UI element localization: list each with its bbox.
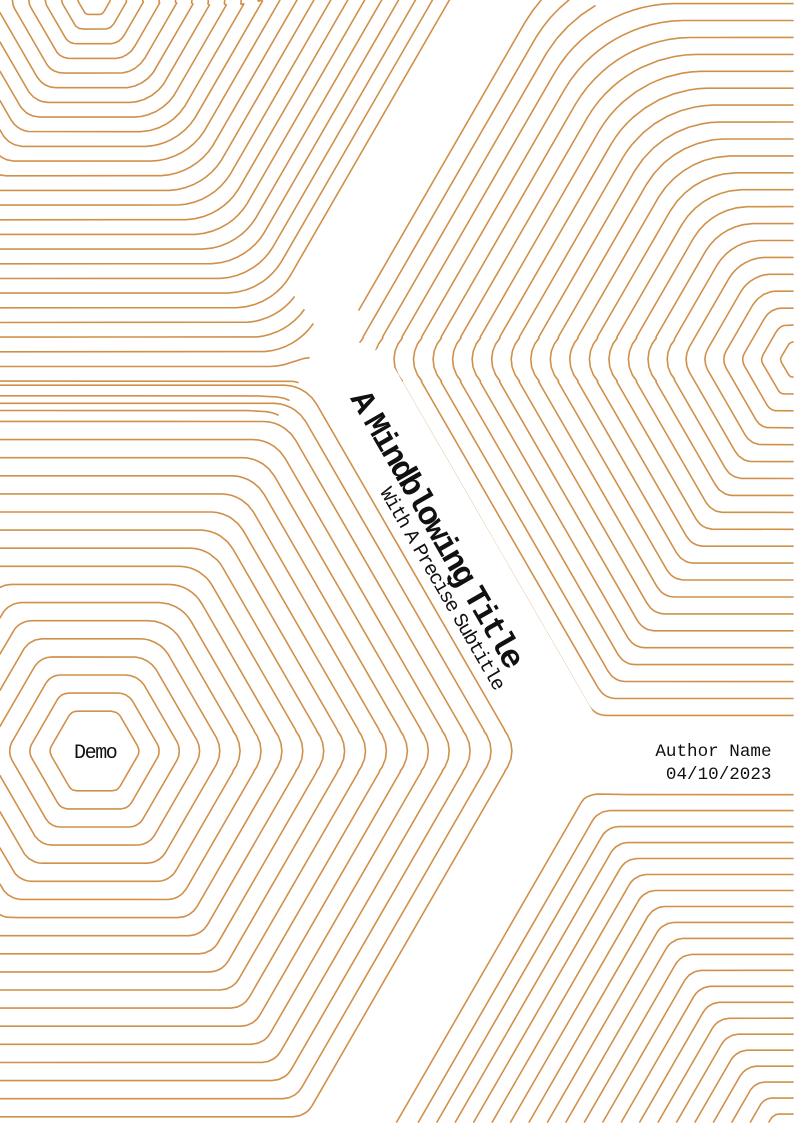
svg-text:Author Name: Author Name [655,742,771,762]
svg-text:Demo: Demo [74,742,117,765]
svg-text:A Mindblowing Title: A Mindblowing Title [341,385,530,676]
svg-text:04/10/2023: 04/10/2023 [666,765,772,785]
